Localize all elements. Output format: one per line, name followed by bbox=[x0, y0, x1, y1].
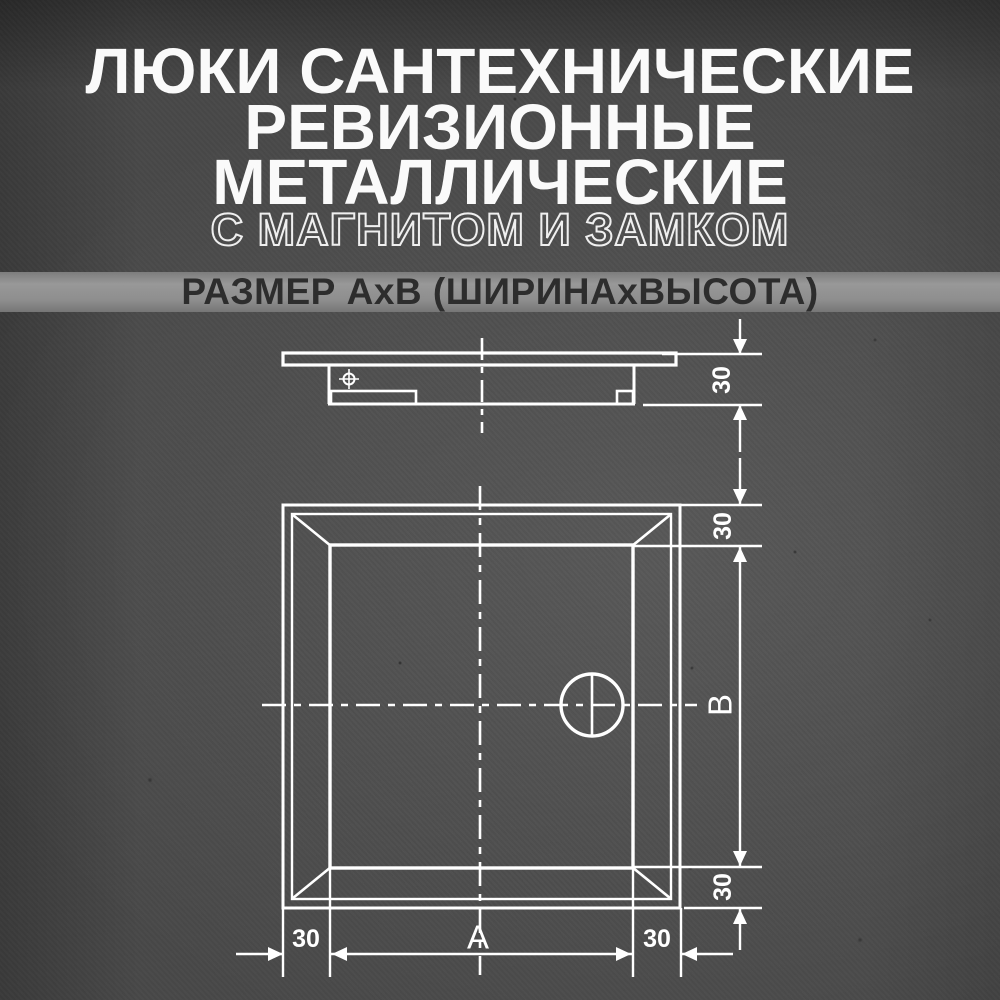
bevel-diagonal-top-left bbox=[293, 515, 331, 546]
side-depth-dimension: 30 bbox=[643, 319, 762, 452]
arrowhead-up bbox=[733, 547, 747, 562]
screw-crosshair-icon bbox=[339, 369, 359, 389]
side-view bbox=[283, 338, 676, 433]
dimension-label: 30 bbox=[643, 925, 671, 953]
dimension-label: 30 bbox=[708, 366, 736, 394]
arrowhead-left bbox=[682, 947, 697, 961]
technical-drawing: 30 bbox=[0, 0, 1000, 1000]
product-image: ЛЮКИ САНТЕХНИЧЕСКИЕ РЕВИЗИОННЫЕ МЕТАЛЛИЧ… bbox=[0, 0, 1000, 1000]
bevel-diagonal-bottom-left bbox=[293, 867, 331, 898]
dimension-label: А bbox=[467, 919, 489, 956]
dimension-label: 30 bbox=[292, 925, 320, 953]
front-view bbox=[262, 486, 697, 975]
arrowhead-up bbox=[733, 405, 747, 420]
bevel-diagonal-bottom-right bbox=[632, 867, 670, 898]
front-door-panel bbox=[330, 545, 633, 868]
arrowhead-down bbox=[733, 851, 747, 866]
arrowhead-right bbox=[616, 947, 631, 961]
side-face-plate bbox=[283, 353, 676, 365]
side-notch-block bbox=[617, 391, 633, 404]
side-step-block bbox=[331, 391, 416, 404]
front-outer-frame-inner-line bbox=[292, 514, 671, 899]
dimension-label: В bbox=[702, 694, 739, 716]
arrowhead-right bbox=[268, 947, 283, 961]
arrowhead-left bbox=[332, 947, 347, 961]
front-outer-frame bbox=[283, 505, 680, 908]
bevel-diagonal-top-right bbox=[632, 515, 670, 546]
arrowhead-up bbox=[733, 909, 747, 924]
arrowhead-down bbox=[733, 339, 747, 354]
dimension-label: 30 bbox=[709, 512, 737, 540]
dimension-label: 30 bbox=[709, 873, 737, 901]
arrowhead-down bbox=[733, 489, 747, 504]
